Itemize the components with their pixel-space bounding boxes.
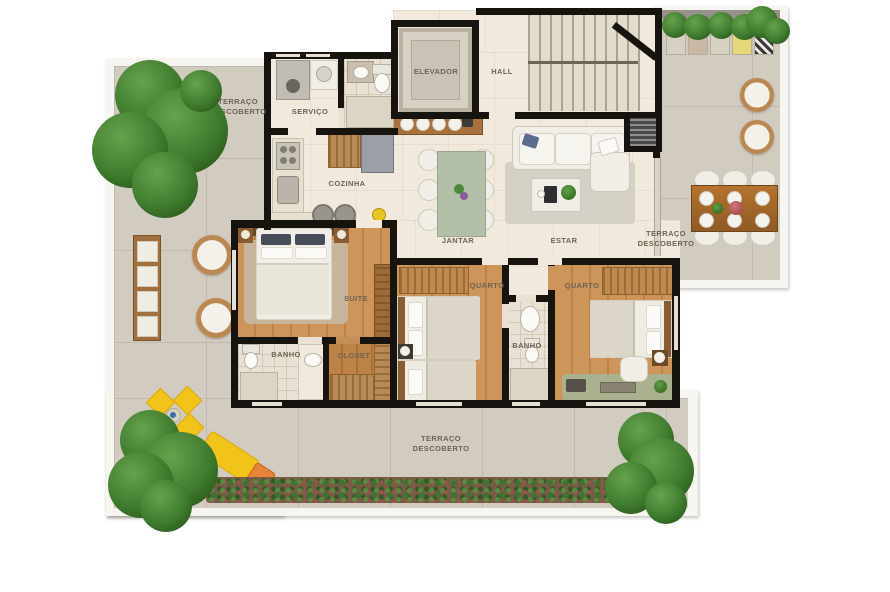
window-blinds	[630, 118, 656, 146]
decor-blue	[170, 412, 176, 418]
stair-railing	[528, 61, 638, 64]
shower	[510, 368, 550, 402]
floor-plan: TERRAÇO DESCOBERTO SERVIÇO ELEVADOR HALL…	[0, 0, 890, 592]
plate	[699, 191, 714, 206]
window	[232, 250, 236, 310]
pillow-white	[261, 247, 293, 259]
table-flowers	[460, 192, 468, 200]
pillow-dark	[261, 234, 291, 245]
wall	[391, 20, 398, 119]
door-gap	[356, 220, 382, 228]
living-window-box	[624, 112, 662, 152]
nightstand	[334, 227, 349, 243]
terrace-dining-table	[691, 185, 778, 232]
dining-table	[437, 151, 486, 237]
nightstand	[238, 227, 253, 243]
tree	[180, 70, 222, 112]
door-gap	[338, 108, 344, 128]
wall	[397, 258, 672, 265]
blanket	[257, 263, 329, 315]
flower-centerpiece	[729, 201, 743, 215]
lavabo-vanity	[347, 61, 374, 83]
pillow	[646, 305, 661, 329]
dish-cabinet	[328, 133, 361, 168]
round-lounge-chair	[192, 235, 232, 275]
plate	[755, 213, 770, 228]
blanket	[426, 361, 476, 402]
quarto1-wardrobe	[399, 267, 469, 294]
label-terraco-right: TERRAÇO DESCOBERTO	[628, 229, 704, 249]
window	[586, 402, 646, 406]
wall	[264, 128, 398, 135]
tree	[645, 482, 687, 524]
label-elevador: ELEVADOR	[414, 67, 458, 77]
label-jantar: JANTAR	[442, 236, 474, 246]
burner	[289, 146, 296, 153]
burner	[280, 157, 287, 164]
wall	[338, 52, 344, 110]
toilet-bowl	[374, 73, 390, 93]
label-cozinha: COZINHA	[329, 179, 366, 189]
table-plant	[561, 185, 576, 200]
closet-shelves	[330, 374, 374, 403]
washer-door	[286, 79, 300, 93]
pillow	[408, 369, 423, 395]
wall	[655, 8, 662, 119]
door-gap	[336, 337, 360, 344]
label-suite: SUITE	[344, 294, 368, 304]
kitchen-sink	[277, 176, 299, 204]
sofa-cushion	[555, 133, 591, 165]
label-hall: HALL	[491, 67, 513, 77]
tree	[764, 18, 790, 44]
label-closet: CLOSET	[338, 351, 371, 361]
wall	[391, 20, 479, 27]
door-gap	[482, 258, 508, 265]
plate	[727, 213, 742, 228]
headboard	[398, 361, 405, 402]
bench-cushion	[137, 291, 158, 312]
decor-dark	[566, 379, 586, 392]
window	[276, 54, 300, 57]
wall	[264, 52, 271, 230]
pedestal-sink	[520, 306, 540, 332]
wall	[472, 20, 479, 112]
tree	[132, 152, 198, 218]
door-gap	[489, 112, 515, 119]
quarto2-rug	[562, 374, 676, 400]
toilet-bowl	[244, 352, 258, 369]
pillow-white	[295, 247, 327, 259]
cooktop	[276, 142, 300, 170]
label-quarto1: QUARTO	[470, 281, 505, 291]
lamp	[654, 352, 665, 363]
window	[416, 402, 462, 406]
round-lounge-chair	[196, 298, 236, 338]
service-tank	[316, 66, 332, 82]
washing-machine	[276, 60, 310, 100]
label-quarto2: QUARTO	[565, 281, 600, 291]
shower	[240, 372, 278, 402]
plant	[654, 380, 667, 393]
door-gap	[298, 337, 322, 344]
tablet	[544, 186, 557, 203]
fridge	[361, 131, 394, 173]
plate	[699, 213, 714, 228]
bench-cushion	[137, 266, 158, 287]
door-gap	[548, 266, 555, 290]
plant-centerpiece	[712, 203, 723, 214]
door-gap	[502, 304, 509, 328]
burner	[280, 146, 287, 153]
coffee-table	[531, 178, 581, 212]
suite-bed	[256, 228, 332, 320]
bench	[600, 382, 636, 393]
plate	[416, 117, 430, 131]
cup	[537, 190, 545, 198]
lamp	[400, 346, 410, 356]
blanket	[591, 301, 635, 357]
window	[252, 402, 282, 406]
blanket	[426, 297, 480, 359]
wall	[390, 220, 397, 408]
door-gap	[288, 128, 316, 135]
lamp	[337, 230, 346, 239]
window	[674, 296, 678, 350]
tree	[140, 480, 192, 532]
round-lounge-chair	[740, 120, 774, 154]
flower-bed	[206, 477, 656, 503]
quarto1-bed2	[397, 360, 475, 403]
wall	[231, 220, 238, 408]
plate	[448, 117, 462, 131]
banho-suite-vanity	[298, 344, 326, 400]
label-banho-suite: BANHO	[271, 350, 301, 360]
headboard	[664, 301, 671, 357]
pillow-dark	[295, 234, 325, 245]
pillow	[408, 302, 423, 328]
plate	[755, 191, 770, 206]
service-sink-counter	[310, 60, 338, 90]
wall	[391, 112, 481, 119]
wall	[323, 340, 329, 408]
quarto2-wardrobe	[602, 267, 678, 295]
bench-cushion	[137, 316, 158, 337]
label-servico: SERVIÇO	[292, 107, 328, 117]
bench-cushion	[137, 241, 158, 262]
terrace-bench	[133, 235, 161, 341]
door-gap	[516, 295, 536, 302]
label-terraco-bottom: TERRAÇO DESCOBERTO	[403, 434, 479, 454]
window	[306, 54, 330, 57]
plate	[400, 117, 414, 131]
nightstand	[652, 350, 668, 366]
label-banho2: BANHO	[512, 341, 542, 351]
window	[512, 402, 540, 406]
sink	[304, 353, 322, 367]
wall	[476, 8, 662, 15]
label-estar: ESTAR	[551, 236, 578, 246]
burner	[289, 157, 296, 164]
sofa-chaise	[590, 152, 630, 192]
lavabo-sink	[353, 66, 369, 79]
round-lounge-chair	[740, 78, 774, 112]
plate	[432, 117, 446, 131]
armchair	[620, 356, 648, 382]
door-gap	[538, 258, 562, 265]
nightstand	[398, 344, 413, 359]
lavabo-shower	[346, 96, 394, 128]
lamp	[241, 230, 250, 239]
